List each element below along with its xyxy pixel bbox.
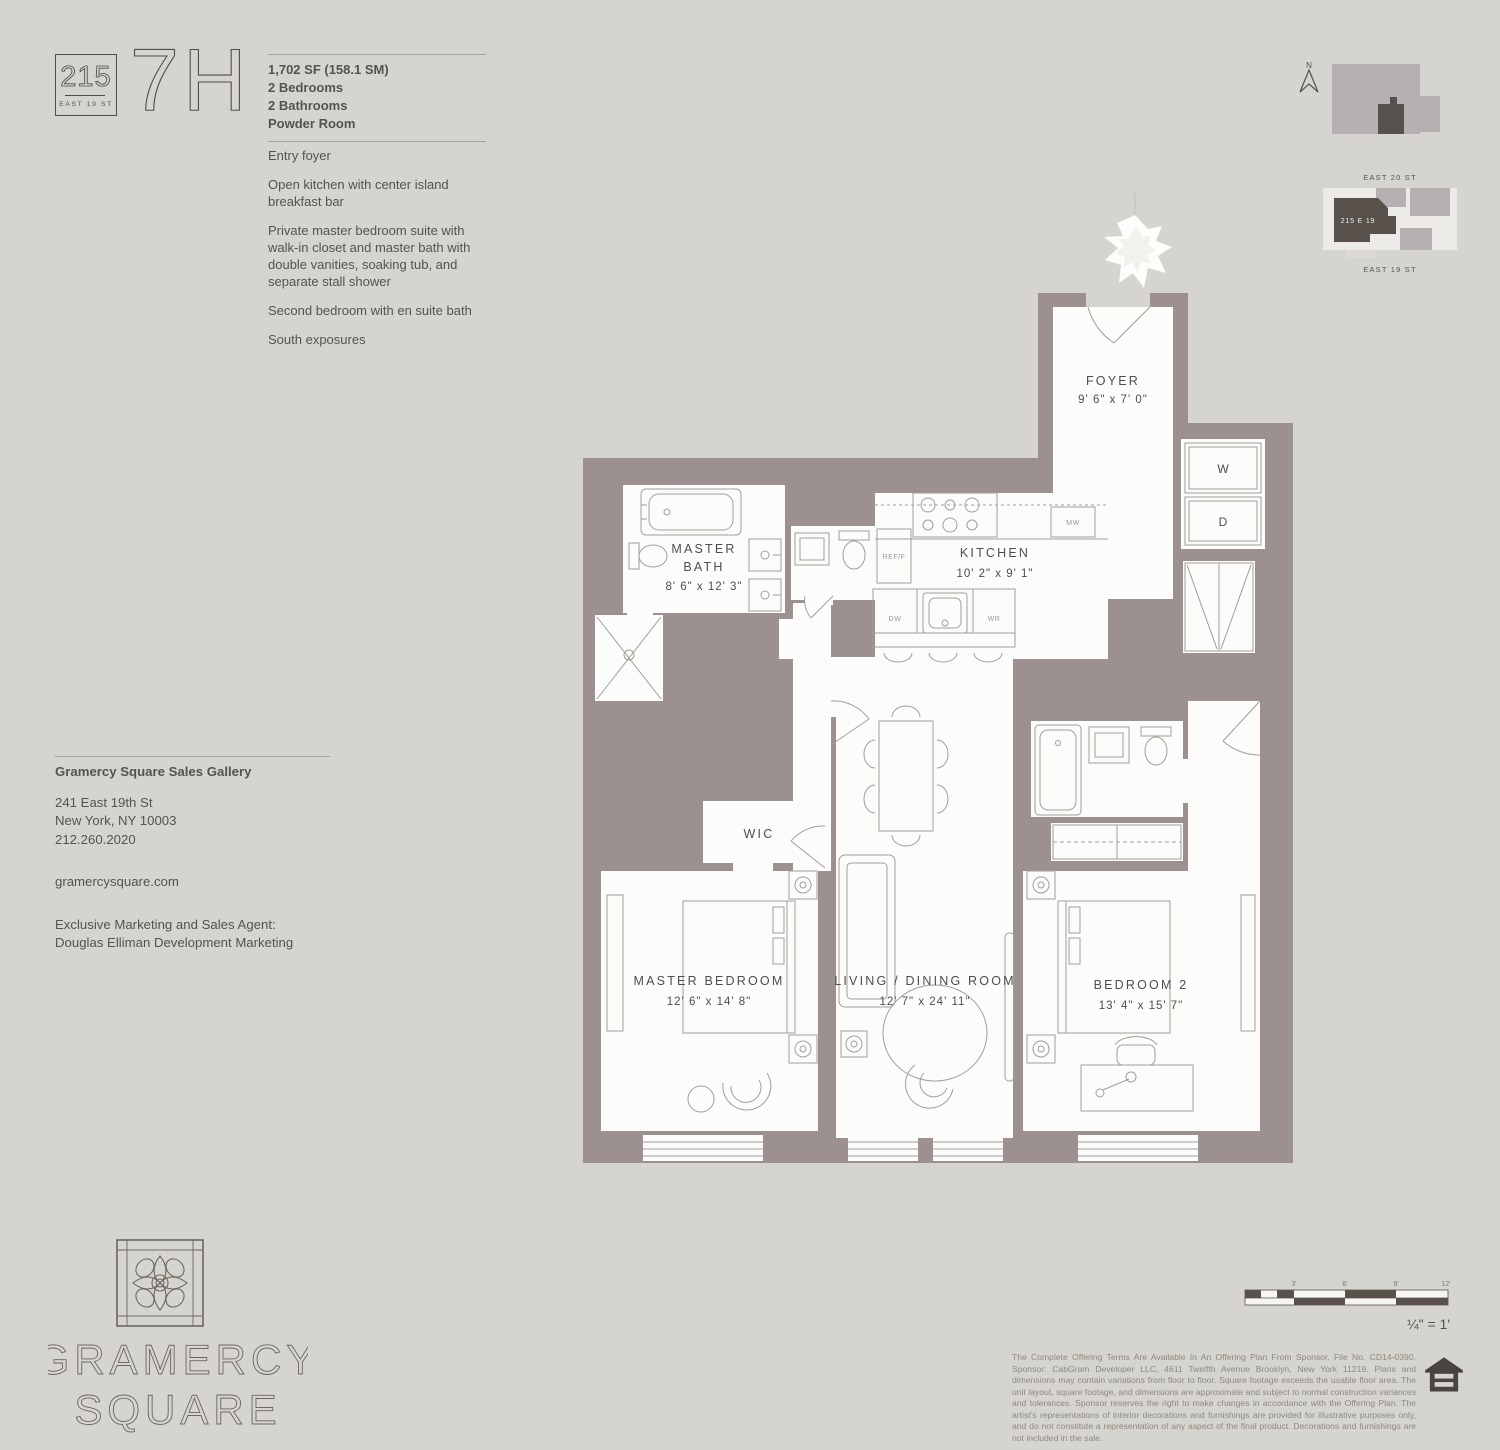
microwave-label: MW (1066, 520, 1079, 527)
bath2-door-gap (1179, 759, 1191, 803)
washer-label: W (1217, 462, 1229, 476)
address-street: EAST 19 ST (56, 101, 116, 108)
north-label: N (1306, 61, 1312, 70)
kitchen-label: KITCHEN (960, 546, 1030, 560)
bath-door-gap (779, 619, 797, 659)
entry-opening (1086, 293, 1150, 307)
block-map: EAST 20 ST 215 E 19 EAST 19 ST (1318, 168, 1468, 280)
header-divider-top (268, 54, 486, 55)
wic-door-gap (733, 859, 773, 873)
address-number: 215 (58, 59, 114, 93)
equal-housing-icon (1424, 1356, 1464, 1394)
north-arrow-icon (1300, 70, 1318, 92)
unit-area: 1,702 SF (158.1 SM) (268, 61, 389, 79)
scale-tick-9: 9' (1393, 1281, 1398, 1288)
scale-tick-12: 12' (1441, 1281, 1450, 1288)
neighbor-building (1400, 228, 1432, 250)
window (848, 1135, 918, 1161)
living-dims: 12' 7" x 24' 11" (879, 996, 970, 1008)
master-bedroom-dims: 12' 6" x 14' 8" (667, 996, 751, 1008)
contact-address-2: New York, NY 10003 (55, 812, 293, 831)
eho-bar (1435, 1374, 1454, 1379)
subject-building-label: 215 E 19 (1341, 218, 1375, 225)
address-box: 215 EAST 19 ST (55, 54, 117, 116)
room-living (836, 657, 1013, 1138)
neighbor-building (1346, 250, 1376, 258)
feature-list: Entry foyer Open kitchen with center isl… (268, 147, 480, 360)
spec-powder: Powder Room (268, 115, 355, 133)
living-label: LIVING / DINING ROOM (834, 974, 1016, 988)
scale-bar: 3' 6' 9' 12' (1212, 1274, 1452, 1314)
bedroom2-dims: 13' 4" x 15' 7" (1099, 1000, 1183, 1012)
foyer-dims: 9' 6" x 7' 0" (1078, 394, 1148, 406)
sales-gallery-title: Gramercy Square Sales Gallery (55, 763, 293, 782)
window (933, 1135, 1003, 1161)
master-bath-label-1: MASTER (671, 542, 736, 556)
contact-block: Gramercy Square Sales Gallery 241 East 1… (55, 763, 293, 953)
contact-divider (55, 756, 330, 757)
master-bath-label-2: BATH (683, 560, 724, 574)
street-bottom-label: EAST 19 ST (1363, 265, 1417, 274)
window (643, 1135, 763, 1161)
keyplan-floorplate: N (1296, 56, 1446, 156)
scale-tick-6: 6' (1342, 1281, 1347, 1288)
feature-item: Private master bedroom suite with walk-i… (268, 222, 480, 290)
shower-gap (627, 607, 653, 619)
wine-ref-label: WR (988, 616, 1001, 623)
contact-website: gramercysquare.com (55, 873, 293, 892)
foyer-label: FOYER (1086, 374, 1140, 388)
master-bath-dims: 8' 6" x 12' 3" (665, 581, 742, 593)
agent-line-2: Douglas Elliman Development Marketing (55, 934, 293, 953)
feature-item: Entry foyer (268, 147, 480, 164)
dishwasher-label: DW (889, 616, 902, 623)
master-bedroom-label: MASTER BEDROOM (634, 974, 785, 988)
address-number-text: 215 (60, 61, 111, 93)
scale-ratio: ¼" = 1' (1360, 1316, 1450, 1332)
brand-name-2: SQUARE (74, 1386, 281, 1433)
bedroom2-label: BEDROOM 2 (1094, 978, 1189, 992)
agent-line-1: Exclusive Marketing and Sales Agent: (55, 916, 293, 935)
unit-specs: 2 Bedrooms 2 Bathrooms Powder Room (268, 79, 355, 133)
scale-bar-segments (1245, 1290, 1448, 1305)
window (1078, 1135, 1198, 1161)
kitchen-dims: 10' 2" x 9' 1" (956, 568, 1033, 580)
brand-name-1: GRAMERCY (48, 1338, 308, 1383)
address-divider (65, 95, 105, 96)
scale-tick-3: 3' (1291, 1281, 1296, 1288)
spec-bedrooms: 2 Bedrooms (268, 79, 355, 97)
dryer-label: D (1219, 515, 1228, 529)
laundry-closet (1181, 439, 1265, 549)
unit-number: 7H (130, 46, 240, 121)
features-divider (268, 141, 486, 142)
wic-label: WIC (744, 827, 775, 841)
feature-item: Open kitchen with center island breakfas… (268, 176, 480, 210)
contact-address-1: 241 East 19th St (55, 794, 293, 813)
floorplan-sheet: { "colors": { "background": "#d6d4cf", "… (0, 0, 1500, 1450)
logo-emblem (117, 1240, 203, 1326)
legal-disclaimer: The Complete Offering Terms Are Availabl… (1012, 1352, 1416, 1444)
feature-item: South exposures (268, 331, 480, 348)
entry-plant-icon (1085, 185, 1185, 310)
neighbor-building (1410, 188, 1450, 216)
fridge-label: REF/F (883, 554, 906, 561)
eho-bar (1435, 1382, 1454, 1387)
bedroom2-vestibule (1188, 701, 1260, 873)
room-bath2 (1031, 721, 1183, 817)
spec-bathrooms: 2 Bathrooms (268, 97, 355, 115)
contact-phone: 212.260.2020 (55, 831, 293, 850)
feature-item: Second bedroom with en suite bath (268, 302, 480, 319)
brand-wordmark: GRAMERCY SQUARE (48, 1338, 308, 1438)
logo-rosette (132, 1255, 187, 1310)
floorplate-shape (1332, 64, 1420, 134)
room-powder (791, 526, 877, 600)
powder-door-gap (805, 593, 833, 605)
unit-number-text: 7H (130, 46, 240, 121)
floor-plan: FOYER 9' 6" x 7' 0" KITCHEN 10' 2" x 9' … (583, 293, 1293, 1173)
street-top-label: EAST 20 ST (1363, 173, 1417, 182)
floorplate-annex (1420, 96, 1440, 132)
